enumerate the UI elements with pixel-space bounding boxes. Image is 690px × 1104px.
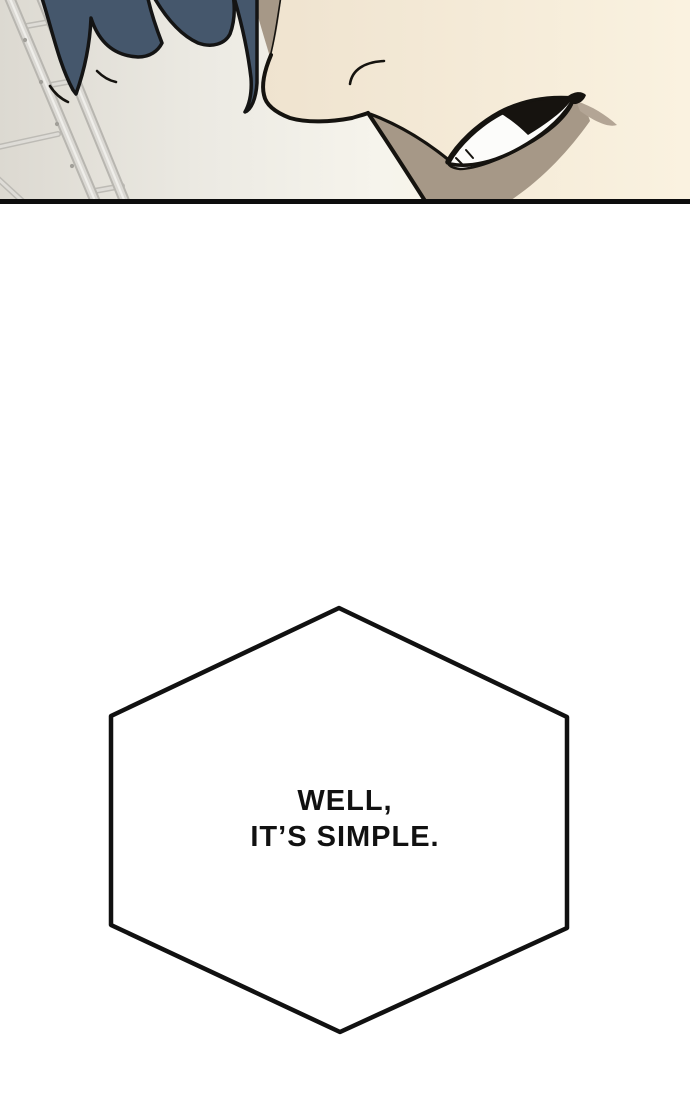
speech-text: WELL, IT’S SIMPLE. (0, 783, 690, 855)
panel-border-line (0, 199, 690, 204)
webtoon-page: WELL, IT’S SIMPLE. (0, 0, 690, 1104)
comic-panel (0, 0, 690, 204)
speech-line-2: IT’S SIMPLE. (0, 819, 690, 855)
speech-line-1: WELL, (0, 783, 690, 819)
panel-artwork (0, 0, 690, 204)
